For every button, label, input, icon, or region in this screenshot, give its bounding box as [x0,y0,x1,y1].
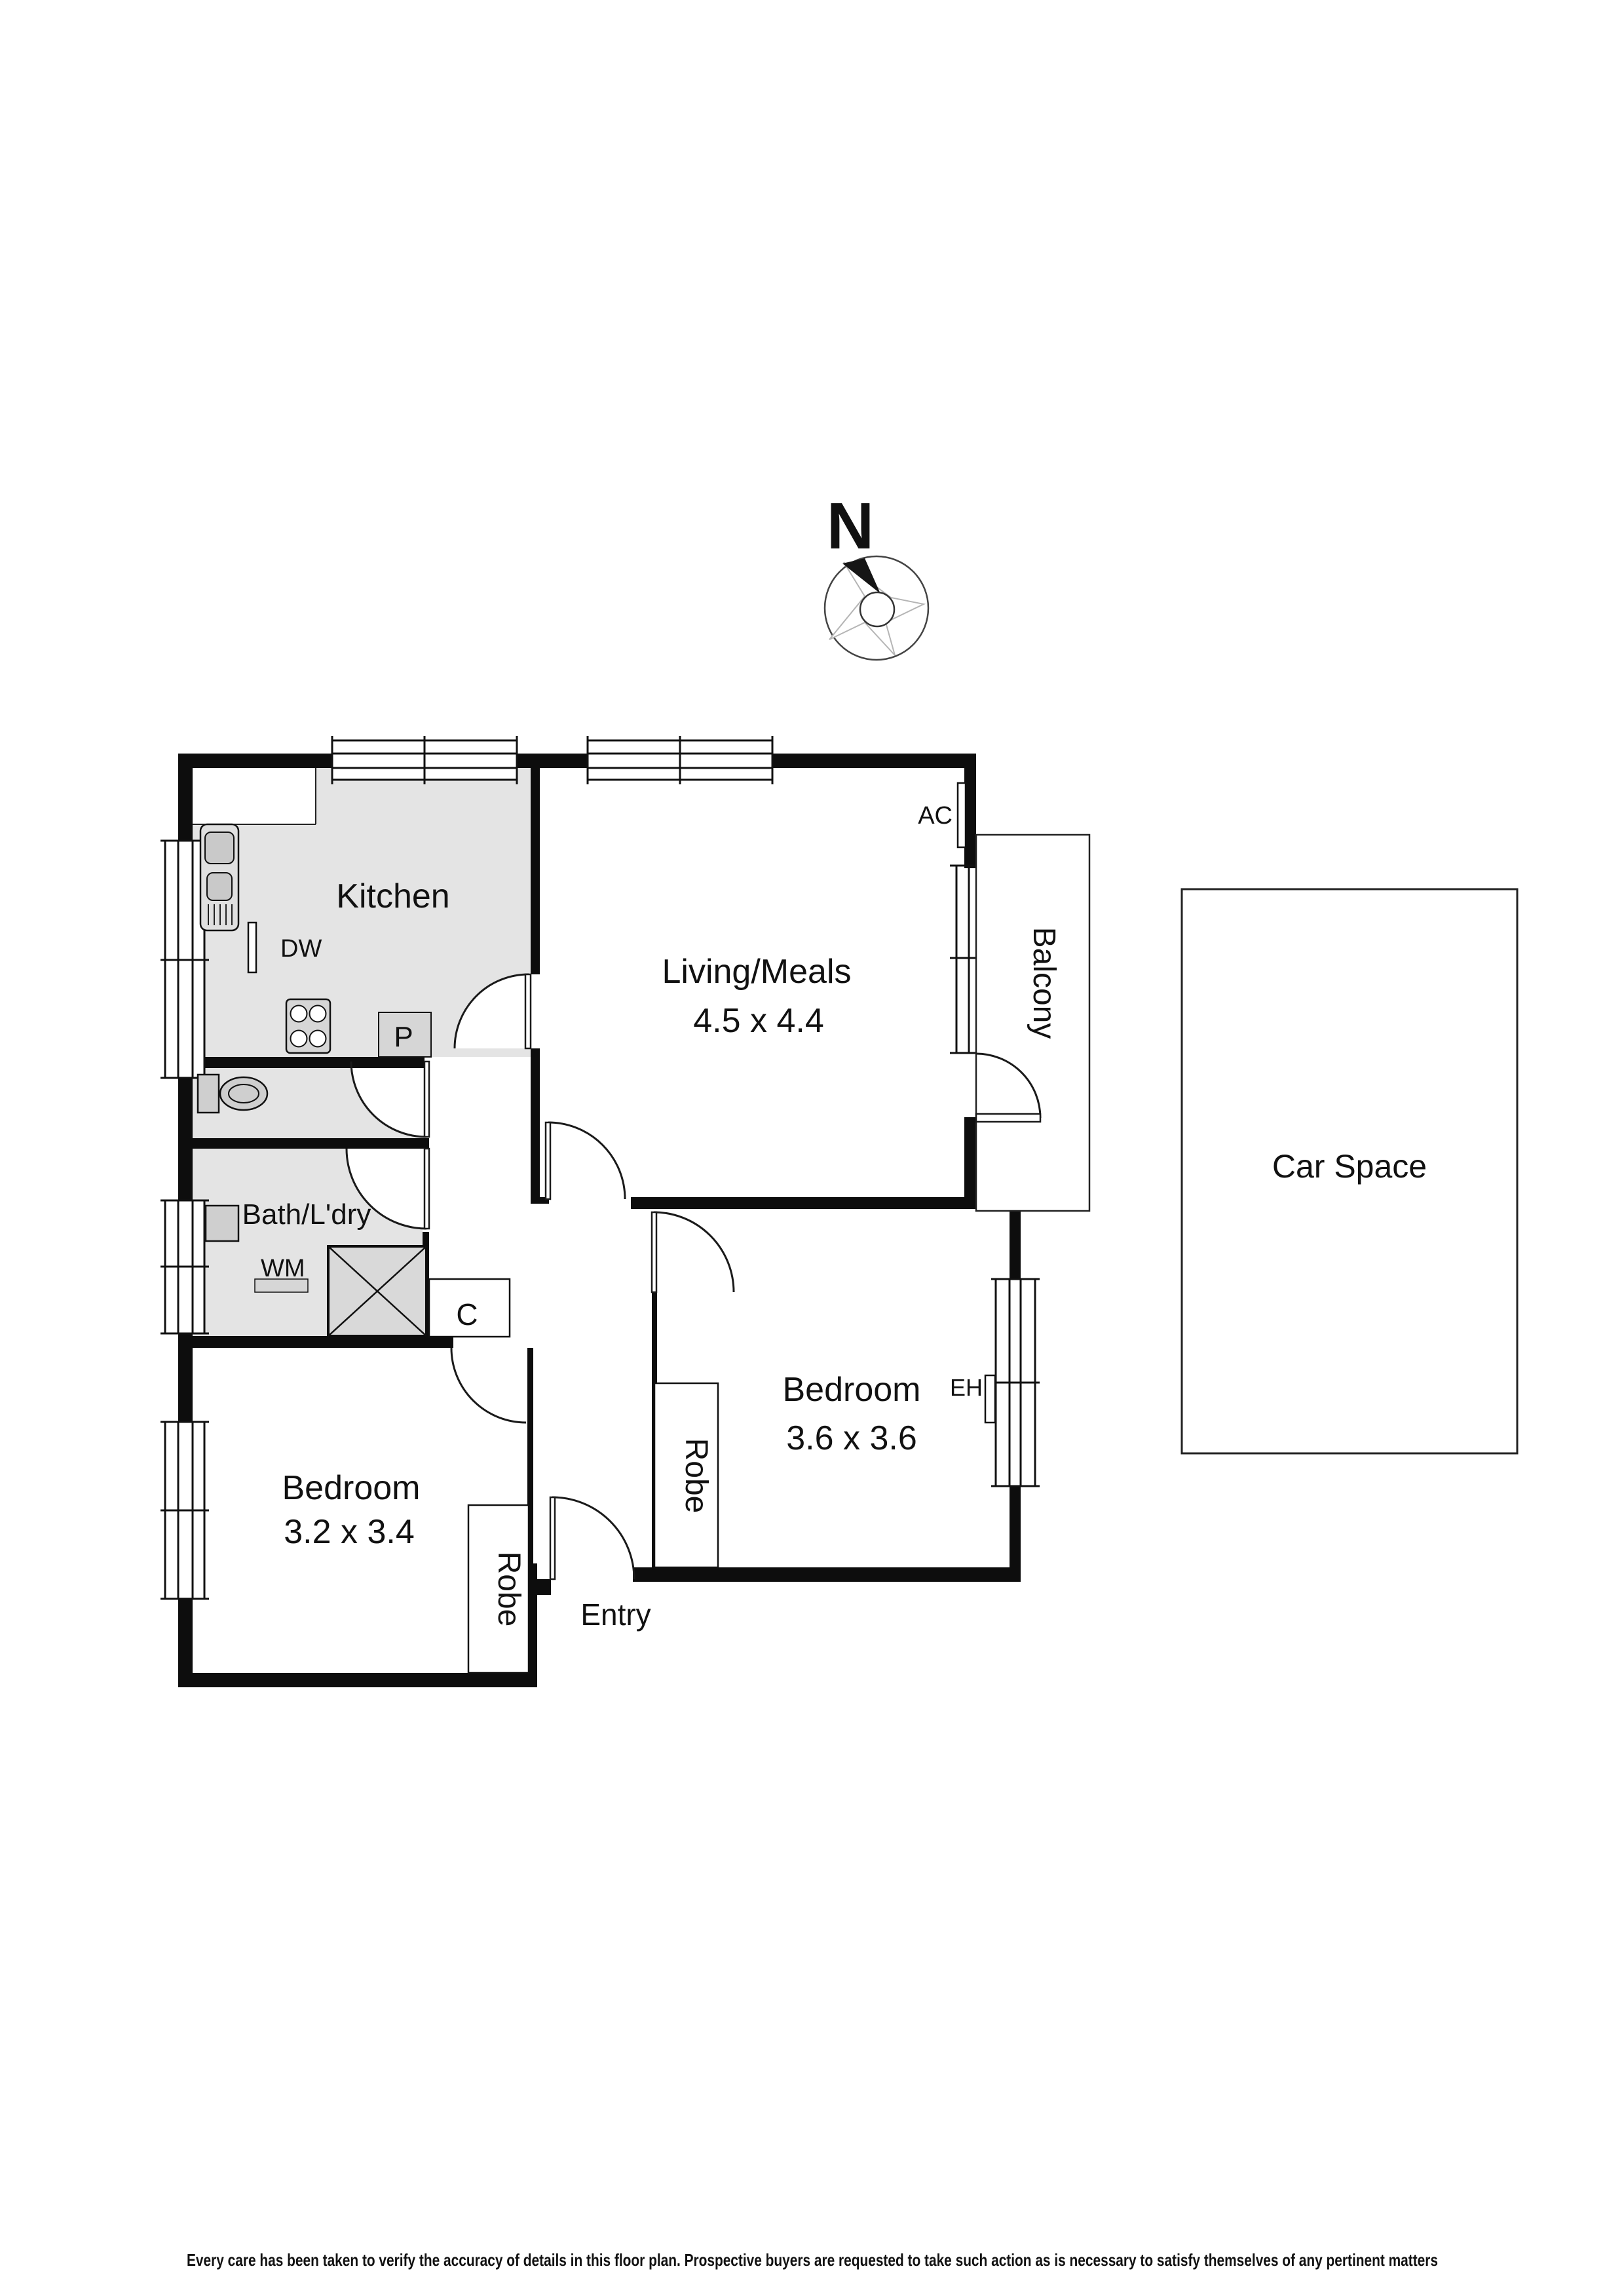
entry-door-icon [550,1497,634,1579]
footer-disclaimer: Every care has been taken to verify the … [187,2250,1438,2270]
bedroom-main-label: Bedroom [783,1371,921,1409]
car-space-label: Car Space [1272,1148,1427,1185]
entry-label: Entry [580,1598,651,1632]
robe-main-label: Robe [679,1438,713,1514]
wall-bottom [178,1673,537,1687]
wall-wc-bottom [190,1138,429,1149]
robe-second-label: Robe [491,1552,526,1627]
electric-heater-label: EH [950,1374,983,1401]
bedroom-main-door-icon [652,1212,734,1292]
balcony-label: Balcony [1027,927,1061,1039]
living-label: Living/Meals [662,953,851,991]
kitchen-sink-icon [200,824,238,930]
wall-bedroom-main-top [631,1197,1021,1209]
living-door-icon [546,1122,625,1199]
bath-laundry-label: Bath/L'dry [242,1198,371,1231]
living-window-icon [588,736,772,784]
electric-heater-icon [985,1375,995,1423]
wall-entry-stub [533,1579,551,1595]
dishwasher-label: DW [280,935,322,963]
floor-plan: N [0,0,1624,2296]
living-dimensions: 4.5 x 4.4 [693,1002,823,1040]
kitchen-bench [193,768,316,824]
shower-icon [328,1246,426,1336]
kitchen-window-icon [332,736,517,784]
wall-kitchen-living-upper [531,765,540,974]
wall-bedroom-main-bottom [633,1567,1021,1582]
compass-hub [860,592,894,626]
bedroom-second-dimensions: 3.2 x 3.4 [284,1513,414,1551]
bedroom-second-window-icon [161,1422,209,1599]
bedroom-second-door-icon [451,1348,526,1423]
compass-icon: N [825,489,928,660]
wall-kitchen-bottom [190,1057,425,1068]
washing-machine-label: WM [261,1255,305,1282]
wall-hall-living [531,1048,540,1204]
wall-top [178,754,976,768]
kitchen-label: Kitchen [336,877,449,915]
cooktop-icon [286,999,330,1053]
air-conditioner-label: AC [918,802,953,830]
air-conditioner-icon [958,783,966,847]
bedroom-main-window-icon [991,1279,1040,1486]
pantry-label: P [394,1021,413,1053]
toilet-icon [198,1075,267,1113]
dishwasher-icon [248,923,256,972]
bedroom-second-label: Bedroom [282,1469,421,1507]
bedroom-main-dimensions: 3.6 x 3.6 [786,1419,916,1457]
vanity-icon [206,1206,238,1241]
wall-living-right-lower [964,1117,976,1209]
cupboard-label: C [456,1297,478,1331]
bath-window-icon [161,1200,209,1333]
compass-north-label: N [827,489,874,563]
wall-bath-bottom [178,1336,453,1348]
